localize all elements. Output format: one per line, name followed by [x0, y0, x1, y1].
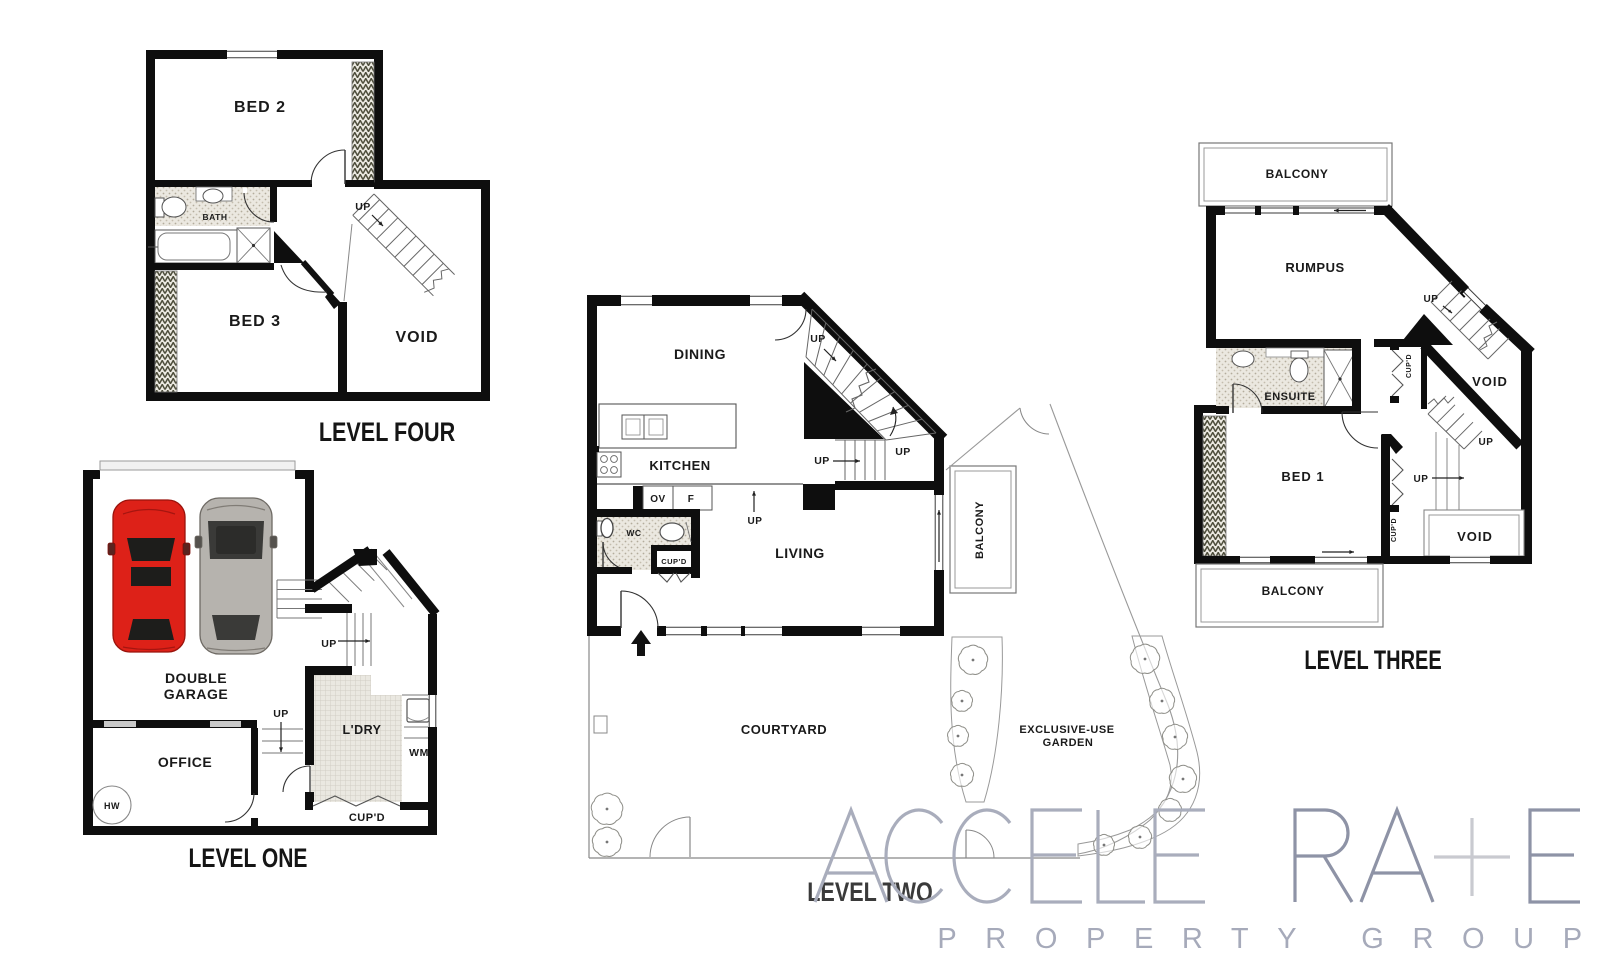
svg-text:LEVEL THREE: LEVEL THREE [1304, 645, 1441, 676]
svg-text:CUP'D: CUP'D [661, 557, 687, 566]
svg-text:WC: WC [626, 528, 641, 538]
svg-text:KITCHEN: KITCHEN [649, 458, 710, 473]
svg-text:CUP'D: CUP'D [349, 812, 385, 824]
svg-text:BALCONY: BALCONY [974, 501, 986, 559]
svg-text:UP: UP [321, 638, 337, 650]
svg-text:LEVEL ONE: LEVEL ONE [189, 844, 308, 874]
svg-text:GARDEN: GARDEN [1043, 737, 1094, 749]
svg-text:UP: UP [895, 446, 911, 458]
svg-text:BED 3: BED 3 [229, 313, 281, 330]
svg-text:BED 1: BED 1 [1281, 469, 1324, 484]
svg-text:L'DRY: L'DRY [342, 723, 381, 737]
svg-text:EXCLUSIVE-USE: EXCLUSIVE-USE [1019, 724, 1114, 736]
svg-text:RUMPUS: RUMPUS [1285, 260, 1344, 275]
svg-text:BED 2: BED 2 [234, 99, 286, 116]
svg-text:LEVEL TWO: LEVEL TWO [807, 878, 933, 908]
svg-text:UP: UP [273, 708, 289, 720]
svg-text:PROPERTY GROUP: PROPERTY GROUP [937, 923, 1600, 955]
svg-text:WM: WM [409, 747, 429, 759]
svg-text:BALCONY: BALCONY [1266, 167, 1329, 181]
svg-text:LIVING: LIVING [775, 545, 825, 561]
svg-text:OV: OV [650, 494, 665, 505]
svg-text:VOID: VOID [395, 329, 438, 346]
svg-text:CUP'D: CUP'D [1406, 354, 1413, 378]
svg-text:UP: UP [355, 201, 371, 213]
svg-text:LEVEL FOUR: LEVEL FOUR [319, 418, 456, 448]
svg-text:UP: UP [748, 516, 763, 527]
svg-text:UP: UP [1414, 474, 1429, 485]
svg-text:VOID: VOID [1472, 374, 1508, 389]
svg-text:UP: UP [814, 455, 830, 467]
svg-text:VOID: VOID [1457, 529, 1493, 544]
svg-text:HW: HW [104, 801, 120, 811]
svg-text:UP: UP [810, 333, 826, 345]
svg-text:GARAGE: GARAGE [164, 686, 228, 702]
svg-text:OFFICE: OFFICE [158, 754, 212, 770]
svg-text:DINING: DINING [674, 346, 726, 362]
svg-text:BALCONY: BALCONY [1262, 584, 1325, 598]
svg-text:UP: UP [1424, 294, 1439, 305]
svg-text:UP: UP [1479, 437, 1494, 448]
svg-text:CUP'D: CUP'D [1391, 518, 1398, 542]
svg-text:ENSUITE: ENSUITE [1264, 391, 1315, 403]
svg-text:BATH: BATH [203, 212, 228, 222]
svg-text:F: F [688, 494, 695, 505]
svg-text:COURTYARD: COURTYARD [741, 722, 827, 737]
svg-text:DOUBLE: DOUBLE [165, 670, 227, 686]
